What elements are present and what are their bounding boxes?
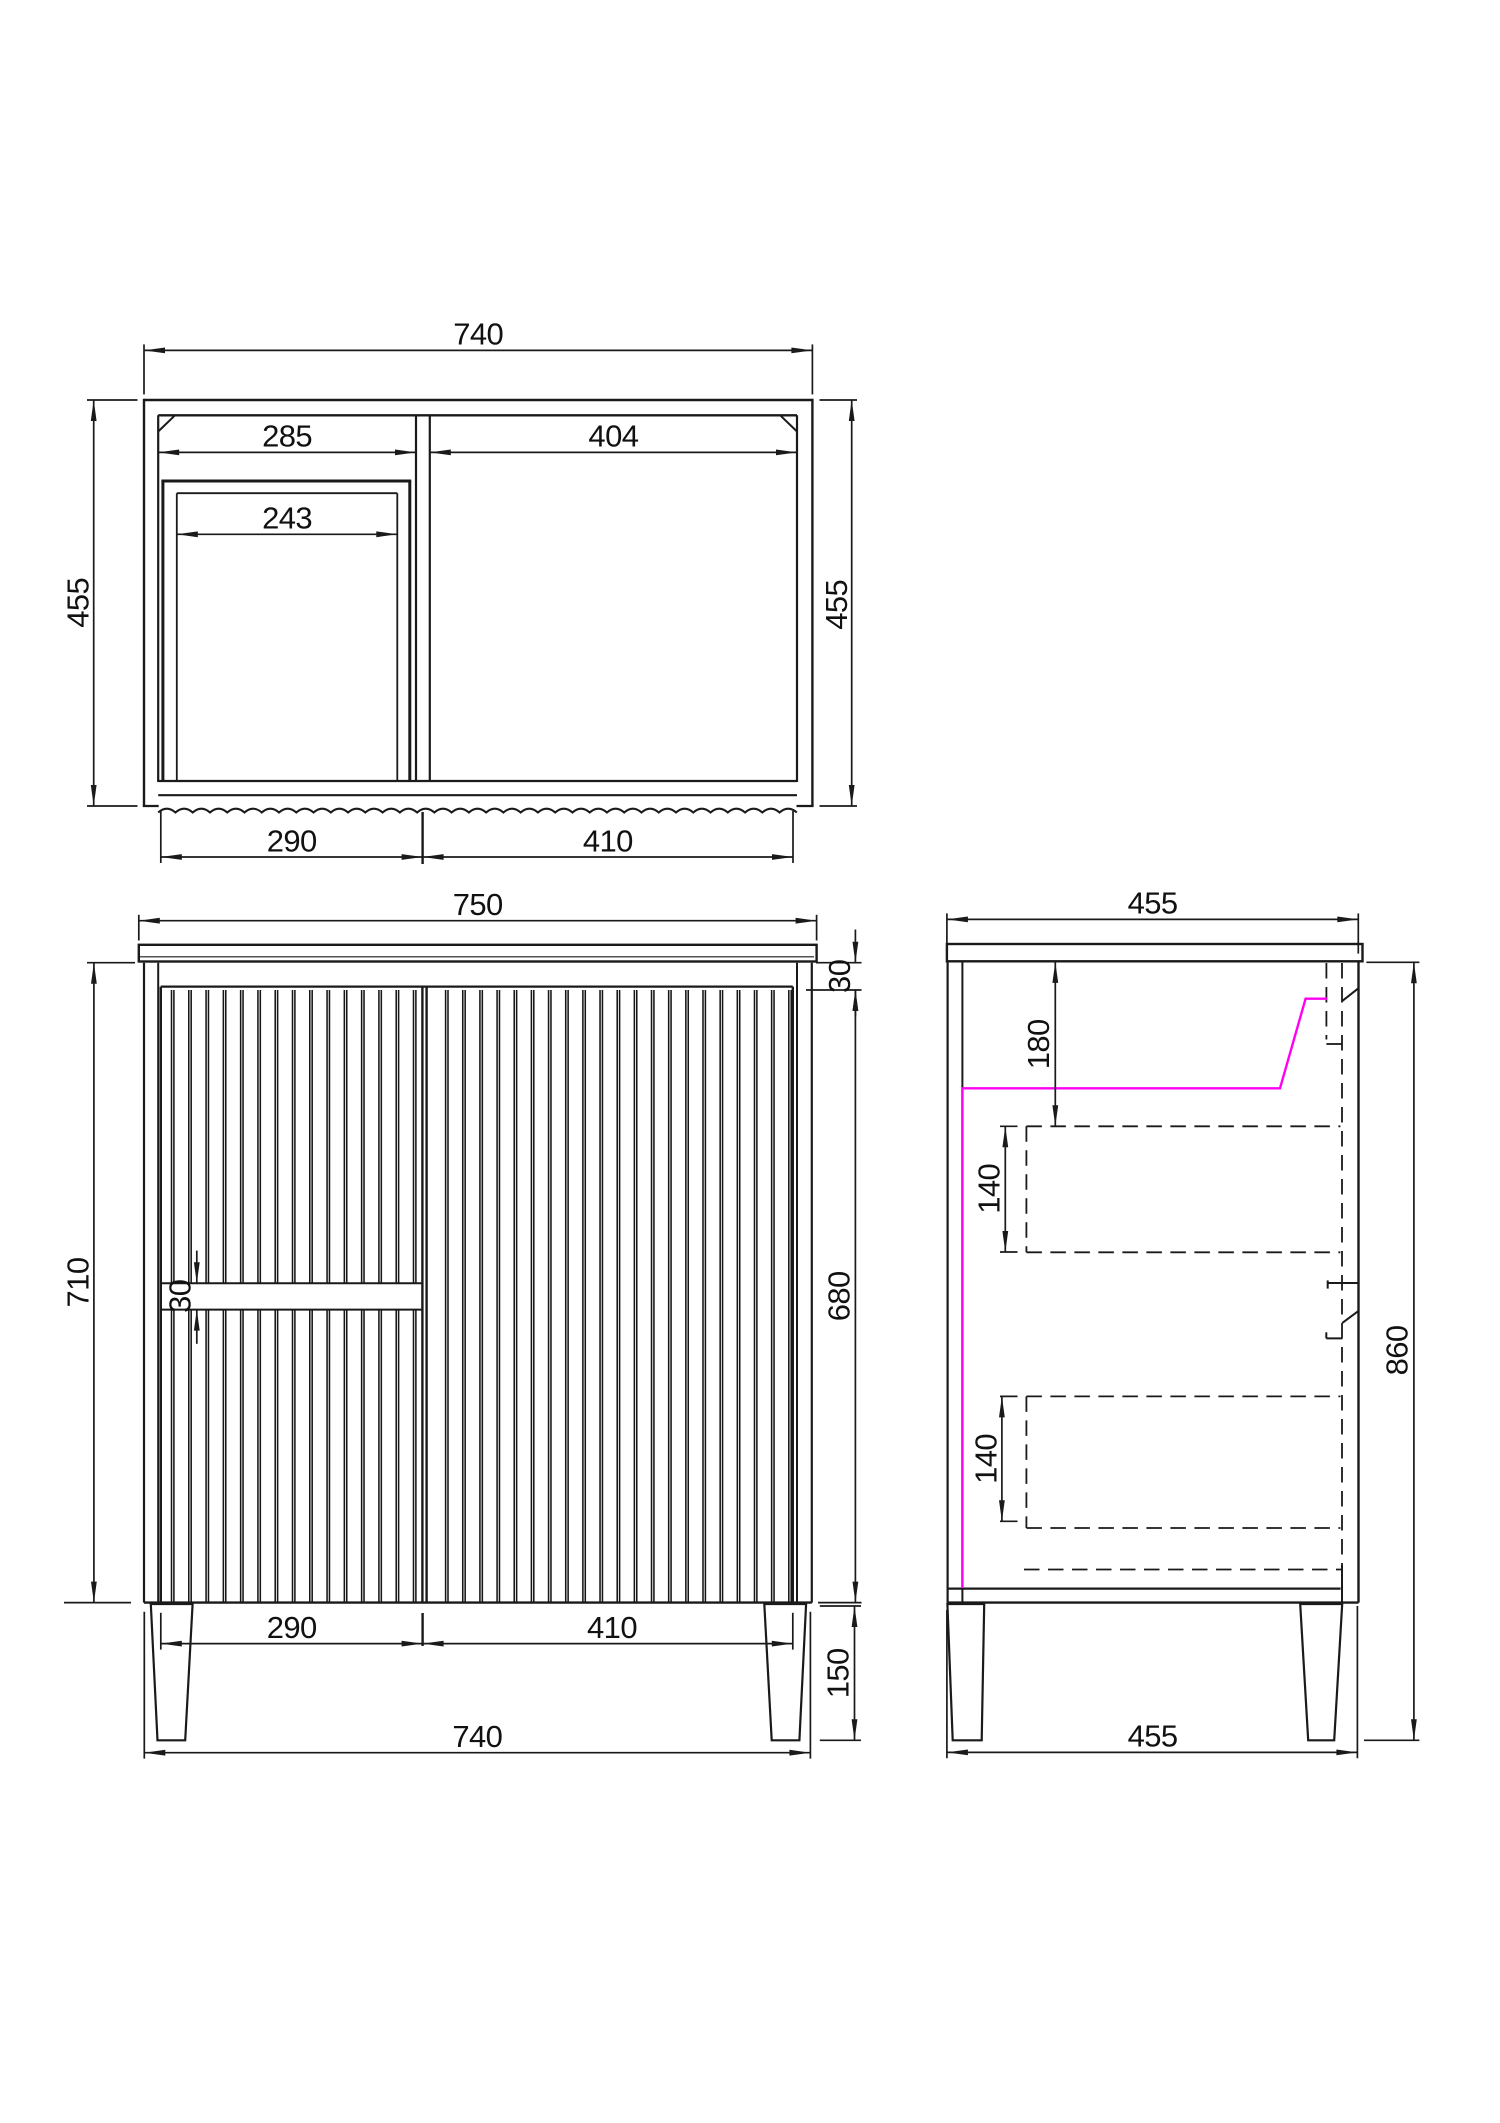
svg-text:455: 455	[1128, 1719, 1178, 1754]
svg-text:150: 150	[820, 1648, 855, 1698]
svg-text:680: 680	[822, 1271, 857, 1321]
svg-text:410: 410	[587, 1610, 637, 1645]
svg-text:140: 140	[968, 1434, 1003, 1484]
svg-text:30: 30	[162, 1279, 197, 1313]
svg-text:710: 710	[61, 1257, 96, 1307]
svg-text:285: 285	[262, 419, 312, 454]
svg-text:243: 243	[262, 501, 312, 536]
svg-text:410: 410	[583, 823, 633, 858]
svg-text:750: 750	[453, 887, 503, 922]
svg-text:290: 290	[267, 823, 317, 858]
svg-text:455: 455	[819, 580, 854, 630]
svg-text:290: 290	[267, 1610, 317, 1645]
svg-text:404: 404	[588, 419, 638, 454]
svg-text:455: 455	[60, 578, 95, 628]
svg-text:740: 740	[453, 317, 503, 352]
svg-text:180: 180	[1021, 1019, 1056, 1069]
svg-text:740: 740	[452, 1719, 502, 1754]
svg-text:860: 860	[1379, 1325, 1414, 1375]
svg-text:140: 140	[972, 1163, 1007, 1213]
svg-text:455: 455	[1128, 886, 1178, 921]
svg-text:30: 30	[822, 959, 857, 993]
